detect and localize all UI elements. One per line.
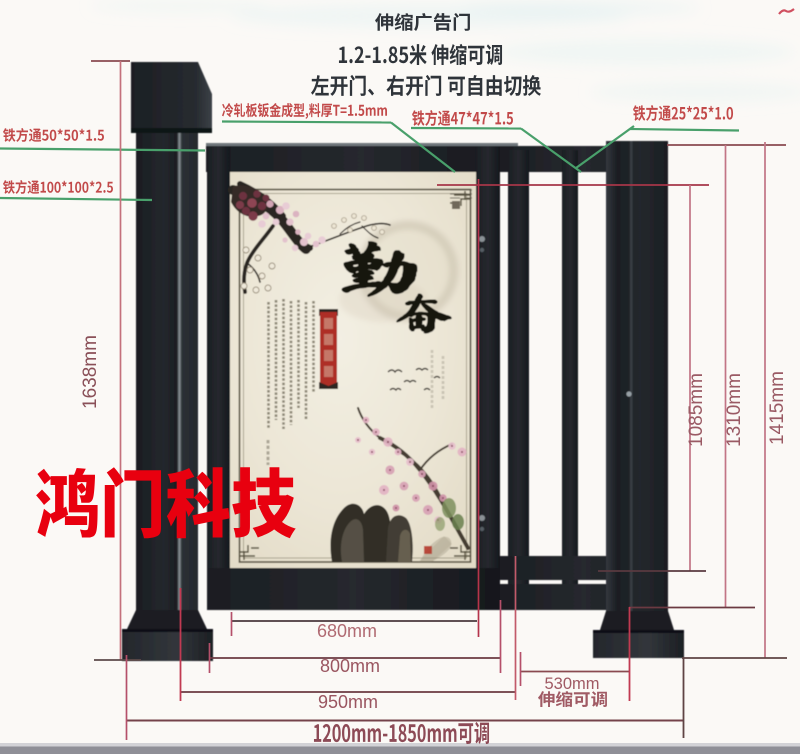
svg-text:680mm: 680mm — [317, 621, 377, 641]
svg-text:1310mm: 1310mm — [724, 373, 745, 447]
svg-text:1638mm: 1638mm — [80, 335, 101, 409]
svg-text:800mm: 800mm — [320, 656, 380, 676]
svg-text:530mm: 530mm — [544, 675, 599, 693]
svg-text:1415mm: 1415mm — [767, 371, 788, 445]
svg-text:1085mm: 1085mm — [686, 373, 707, 447]
svg-text:950mm: 950mm — [318, 692, 378, 712]
